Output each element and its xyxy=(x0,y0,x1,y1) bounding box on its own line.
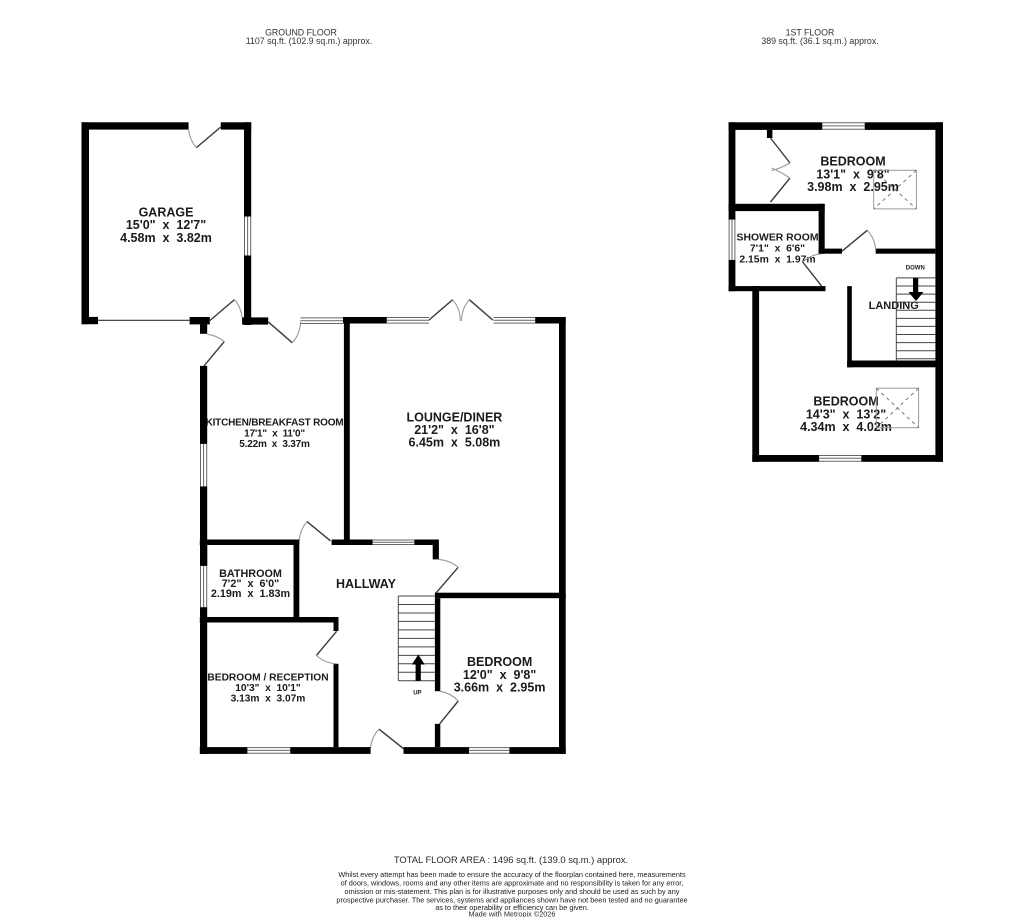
svg-text:3.98m x 2.95m: 3.98m x 2.95m xyxy=(807,180,899,194)
svg-text:KITCHEN/BREAKFAST ROOM: KITCHEN/BREAKFAST ROOM xyxy=(206,418,344,429)
svg-text:2.19m x 1.83m: 2.19m x 1.83m xyxy=(211,588,290,600)
svg-text:BEDROOM: BEDROOM xyxy=(820,154,885,168)
svg-text:3.66m x 2.95m: 3.66m x 2.95m xyxy=(454,680,546,694)
svg-text:6.45m x 5.08m: 6.45m x 5.08m xyxy=(409,436,501,450)
svg-text:4.58m x 3.82m: 4.58m x 3.82m xyxy=(120,231,212,245)
svg-text:BEDROOM / RECEPTION: BEDROOM / RECEPTION xyxy=(207,672,328,683)
svg-text:7'1" x 6'6": 7'1" x 6'6" xyxy=(750,243,805,254)
svg-text:5.22m x 3.37m: 5.22m x 3.37m xyxy=(239,439,310,450)
svg-text:10'3" x 10'1": 10'3" x 10'1" xyxy=(235,683,301,694)
svg-text:4.34m x 4.02m: 4.34m x 4.02m xyxy=(800,420,892,434)
svg-text:HALLWAY: HALLWAY xyxy=(336,577,397,591)
svg-text:UP: UP xyxy=(413,691,421,697)
svg-text:SHOWER ROOM: SHOWER ROOM xyxy=(737,232,819,243)
svg-text:DOWN: DOWN xyxy=(906,266,925,272)
svg-text:389 sq.ft. (36.1 sq.m.) approx: 389 sq.ft. (36.1 sq.m.) approx. xyxy=(761,36,878,46)
svg-text:Made with Metropix ©2026: Made with Metropix ©2026 xyxy=(469,909,556,917)
svg-text:1107 sq.ft. (102.9 sq.m.) appr: 1107 sq.ft. (102.9 sq.m.) approx. xyxy=(246,36,372,46)
svg-text:17'1" x 11'0": 17'1" x 11'0" xyxy=(244,428,305,439)
svg-text:3.13m x 3.07m: 3.13m x 3.07m xyxy=(231,694,306,705)
svg-text:TOTAL FLOOR AREA : 1496 sq.ft.: TOTAL FLOOR AREA : 1496 sq.ft. (139.0 sq… xyxy=(394,854,628,865)
